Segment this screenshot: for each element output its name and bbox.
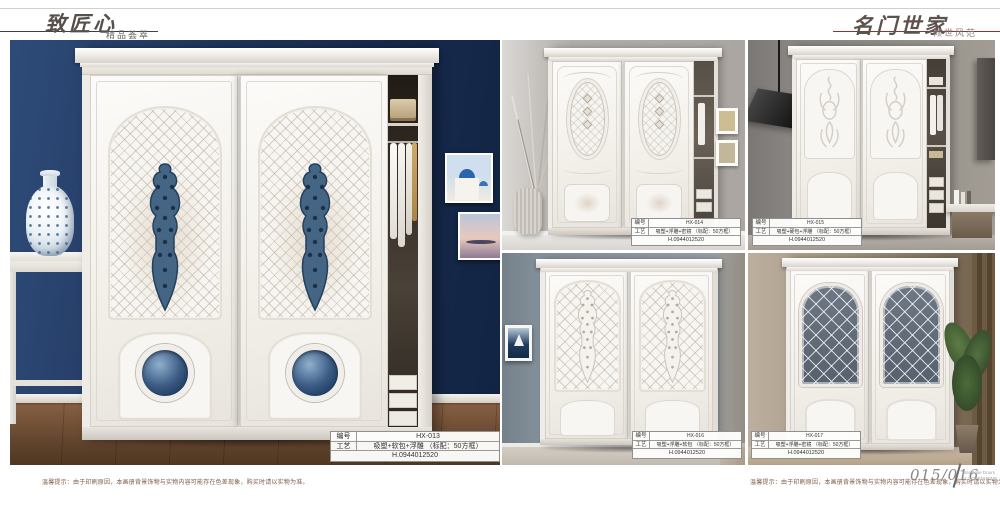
product-photo-hx015: 编号 HX-015 工艺 吸塑+硬包+浮雕 （标配：50方框） H.094401… [748,40,995,250]
sliding-door-left [90,75,238,427]
sliding-door-right [630,271,713,439]
wall-photo-blue-dome [445,153,493,203]
sliding-door-left [796,59,861,228]
catalog-spread: { "header": { "left_title": "致匠心", "left… [0,0,1000,505]
hanging-clothes-tan [412,143,417,221]
info-table-hx013: 编号 HX-013 工艺 吸塑+软包+浮雕 （标配：50方框） H.094401… [330,431,500,462]
sliding-door-left [552,61,622,228]
diamond-inlay [655,120,665,130]
info-row-craft: 工艺 吸塑+软包+浮雕 （标配：50方框） [331,442,499,452]
porthole-window [286,344,344,402]
wall-cabinet [977,58,995,160]
wave-line [635,164,683,174]
wardrobe-side-frame [946,59,950,228]
folded-clothes [929,151,943,158]
serial-value: H.0944012520 [633,449,741,458]
code-value: HX-013 [357,432,499,441]
diamond-inlay [583,107,593,117]
craft-label: 工艺 [752,441,769,449]
wardrobe-cornice [75,48,439,63]
plant-pot [954,425,980,453]
arch-panel-bottom [807,172,852,220]
wall-photo-sunset [458,212,500,260]
interior-drawer [389,375,417,390]
sliding-door-left [790,270,869,444]
interior-drawer [929,177,944,187]
interior-drawer [696,202,712,212]
code-label: 编号 [331,432,357,441]
shelf-edge [927,87,946,89]
craft-label: 工艺 [331,442,357,451]
shelf-edge [694,157,714,159]
tufted-ornament-white [656,288,689,386]
product-photo-hx017: 编号 HX-017 工艺 吸塑+浮雕+密镜 （标配：50方框） H.094401… [748,253,995,465]
white-church [455,178,479,200]
interior-drawer [389,393,417,408]
wardrobe-cornice [788,46,954,55]
shelf-edge [927,145,946,147]
info-row-code: 编号 HX-017 [752,432,860,441]
sliding-door-right [240,75,388,427]
vase-body [26,185,74,256]
info-row-craft: 工艺 吸塑+硬包+浮雕 （标配：50方框） [753,228,861,237]
wardrobe [82,48,432,440]
code-value: HX-014 [649,219,740,227]
wardrobe [786,258,954,450]
potted-plant [940,321,995,465]
info-row-serial: H.0944012520 [632,236,740,245]
header-right-subtitle: 倾世风范 [933,26,977,39]
basket-relief [575,193,600,213]
tufted-ornament [292,160,338,316]
desk-books [961,192,965,204]
disclaimer-left: 温馨提示：由于印刷原因，本画册背景饰物与实物内容可能存在色差现象，购买时请以实物… [42,477,309,486]
code-value: HX-017 [769,432,860,440]
top-rule [0,8,1000,9]
serial-value: H.0944012520 [331,451,499,461]
info-table-hx015: 编号 HX-015 工艺 吸塑+硬包+浮雕 （标配：50方框） H.094401… [752,218,862,246]
carved-medallion [880,74,911,154]
code-label: 编号 [632,219,649,227]
product-photo-hx013: 编号 HX-013 工艺 吸塑+软包+浮雕 （标配：50方框） H.094401… [10,40,500,465]
hanging-clothes [937,95,943,131]
serial-value: H.0944012520 [752,449,860,458]
serial-value: H.0944012520 [632,236,740,245]
wardrobe-cornice [544,48,722,57]
craft-value: 吸塑+浮雕+密镜 （标配：50方框） [649,228,740,236]
sliding-door-right [624,61,694,228]
arch-panel-bottom [873,172,918,220]
interior-drawer [929,190,944,200]
craft-value: 吸塑+浮雕+软包 （标配：50方框） [650,441,741,449]
tufted-ornament [142,160,188,316]
wall-frame [716,140,738,166]
shelf-edge [694,95,714,97]
wave-line [563,164,611,174]
info-row-code: 编号 HX-013 [331,432,499,442]
serial-value: H.0944012520 [753,236,861,245]
wall-frame [716,108,738,134]
closet-interior [388,75,418,427]
glass-arch-panel [880,283,943,387]
floor-vase [514,188,542,234]
table-leg [10,272,16,424]
suitcase [390,99,416,121]
carved-medallion [814,74,845,154]
glass-arch-panel [799,283,862,387]
sail [514,334,524,346]
sliding-door-left [545,271,628,439]
closet-interior [927,59,946,228]
hanging-clothes [930,95,936,135]
info-row-craft: 工艺 吸塑+浮雕+密镜 （标配：50方框） [632,228,740,237]
hanging-clothes [398,143,405,247]
info-table-hx016: 编号 HX-016 工艺 吸塑+浮雕+软包 （标配：50方框） H.094401… [632,431,742,459]
code-label: 编号 [753,219,770,227]
bottom-panel [636,184,682,222]
wardrobe [548,48,718,235]
craft-value: 吸塑+浮雕+密镜 （标配：50方框） [769,441,860,449]
info-row-craft: 工艺 吸塑+浮雕+密镜 （标配：50方框） [752,441,860,450]
info-row-serial: H.0944012520 [331,451,499,461]
wardrobe [540,259,718,445]
info-table-hx017: 编号 HX-017 工艺 吸塑+浮雕+密镜 （标配：50方框） H.094401… [751,431,861,459]
wardrobe [792,46,950,235]
craft-value: 吸塑+硬包+浮雕 （标配：50方框） [770,228,861,236]
diamond-inlay [655,94,665,104]
code-label: 编号 [633,432,650,440]
blue-dome [459,169,475,178]
wall-frame-sailboat [505,325,532,361]
porcelain-vase [26,170,74,256]
hanging-clothes [698,103,705,145]
table-stretcher [10,380,90,386]
desk-base [952,212,992,238]
info-row-code: 编号 HX-016 [633,432,741,441]
basket-relief [647,193,672,213]
brand-line2: ALL CHENHONG [962,476,997,482]
wardrobe-side-frame [713,271,718,439]
sliding-door-right [871,270,950,444]
craft-value: 吸塑+软包+浮雕 （标配：50方框） [357,442,499,451]
closet-interior [694,61,714,228]
interior-drawer [929,203,944,213]
code-label: 编号 [752,432,769,440]
wardrobe-cornice [782,258,958,267]
info-row-serial: H.0944012520 [633,449,741,458]
interior-drawer [389,411,417,426]
oval-medallion [642,82,677,156]
island-silhouette [466,240,496,244]
arch-panel-bottom [886,399,937,441]
plant-leaves [952,355,982,411]
info-table-hx014: 编号 HX-014 工艺 吸塑+浮雕+密镜 （标配：50方框） H.094401… [631,218,741,246]
diamond-inlay [583,120,593,130]
info-row-code: 编号 HX-014 [632,219,740,228]
lamp-cord [778,40,780,94]
craft-label: 工艺 [633,441,650,449]
shelf-edge [388,123,418,126]
diamond-inlay [655,107,665,117]
product-photo-hx014: 编号 HX-014 工艺 吸塑+浮雕+密镜 （标配：50方框） H.094401… [502,40,745,250]
craft-label: 工艺 [632,228,649,236]
info-row-serial: H.0944012520 [752,449,860,458]
desk [946,204,995,212]
info-row-craft: 工艺 吸塑+浮雕+软包 （标配：50方框） [633,441,741,450]
desk-books [954,190,959,204]
info-row-code: 编号 HX-015 [753,219,861,228]
oval-medallion [570,82,605,156]
diamond-inlay [583,94,593,104]
hanging-clothes [390,143,397,239]
brand-mark: Wardrobe Doors ALL CHENHONG [962,470,997,482]
blue-dome-small [479,181,488,186]
porthole-window [136,344,194,402]
info-row-serial: H.0944012520 [753,236,861,245]
arch-panel-bottom [560,400,615,436]
code-value: HX-016 [650,432,741,440]
interior-drawer [696,189,712,199]
wardrobe-side-frame [418,75,432,427]
sliding-door-right [862,59,927,228]
tufted-ornament-white [571,288,604,386]
desk-books [967,191,971,204]
product-photo-hx016: 编号 HX-016 工艺 吸塑+浮雕+软包 （标配：50方框） H.094401… [502,253,745,465]
folded-clothes [929,77,943,85]
code-value: HX-015 [770,219,861,227]
craft-label: 工艺 [753,228,770,236]
wardrobe-cornice [536,259,722,268]
bottom-panel [564,184,610,222]
